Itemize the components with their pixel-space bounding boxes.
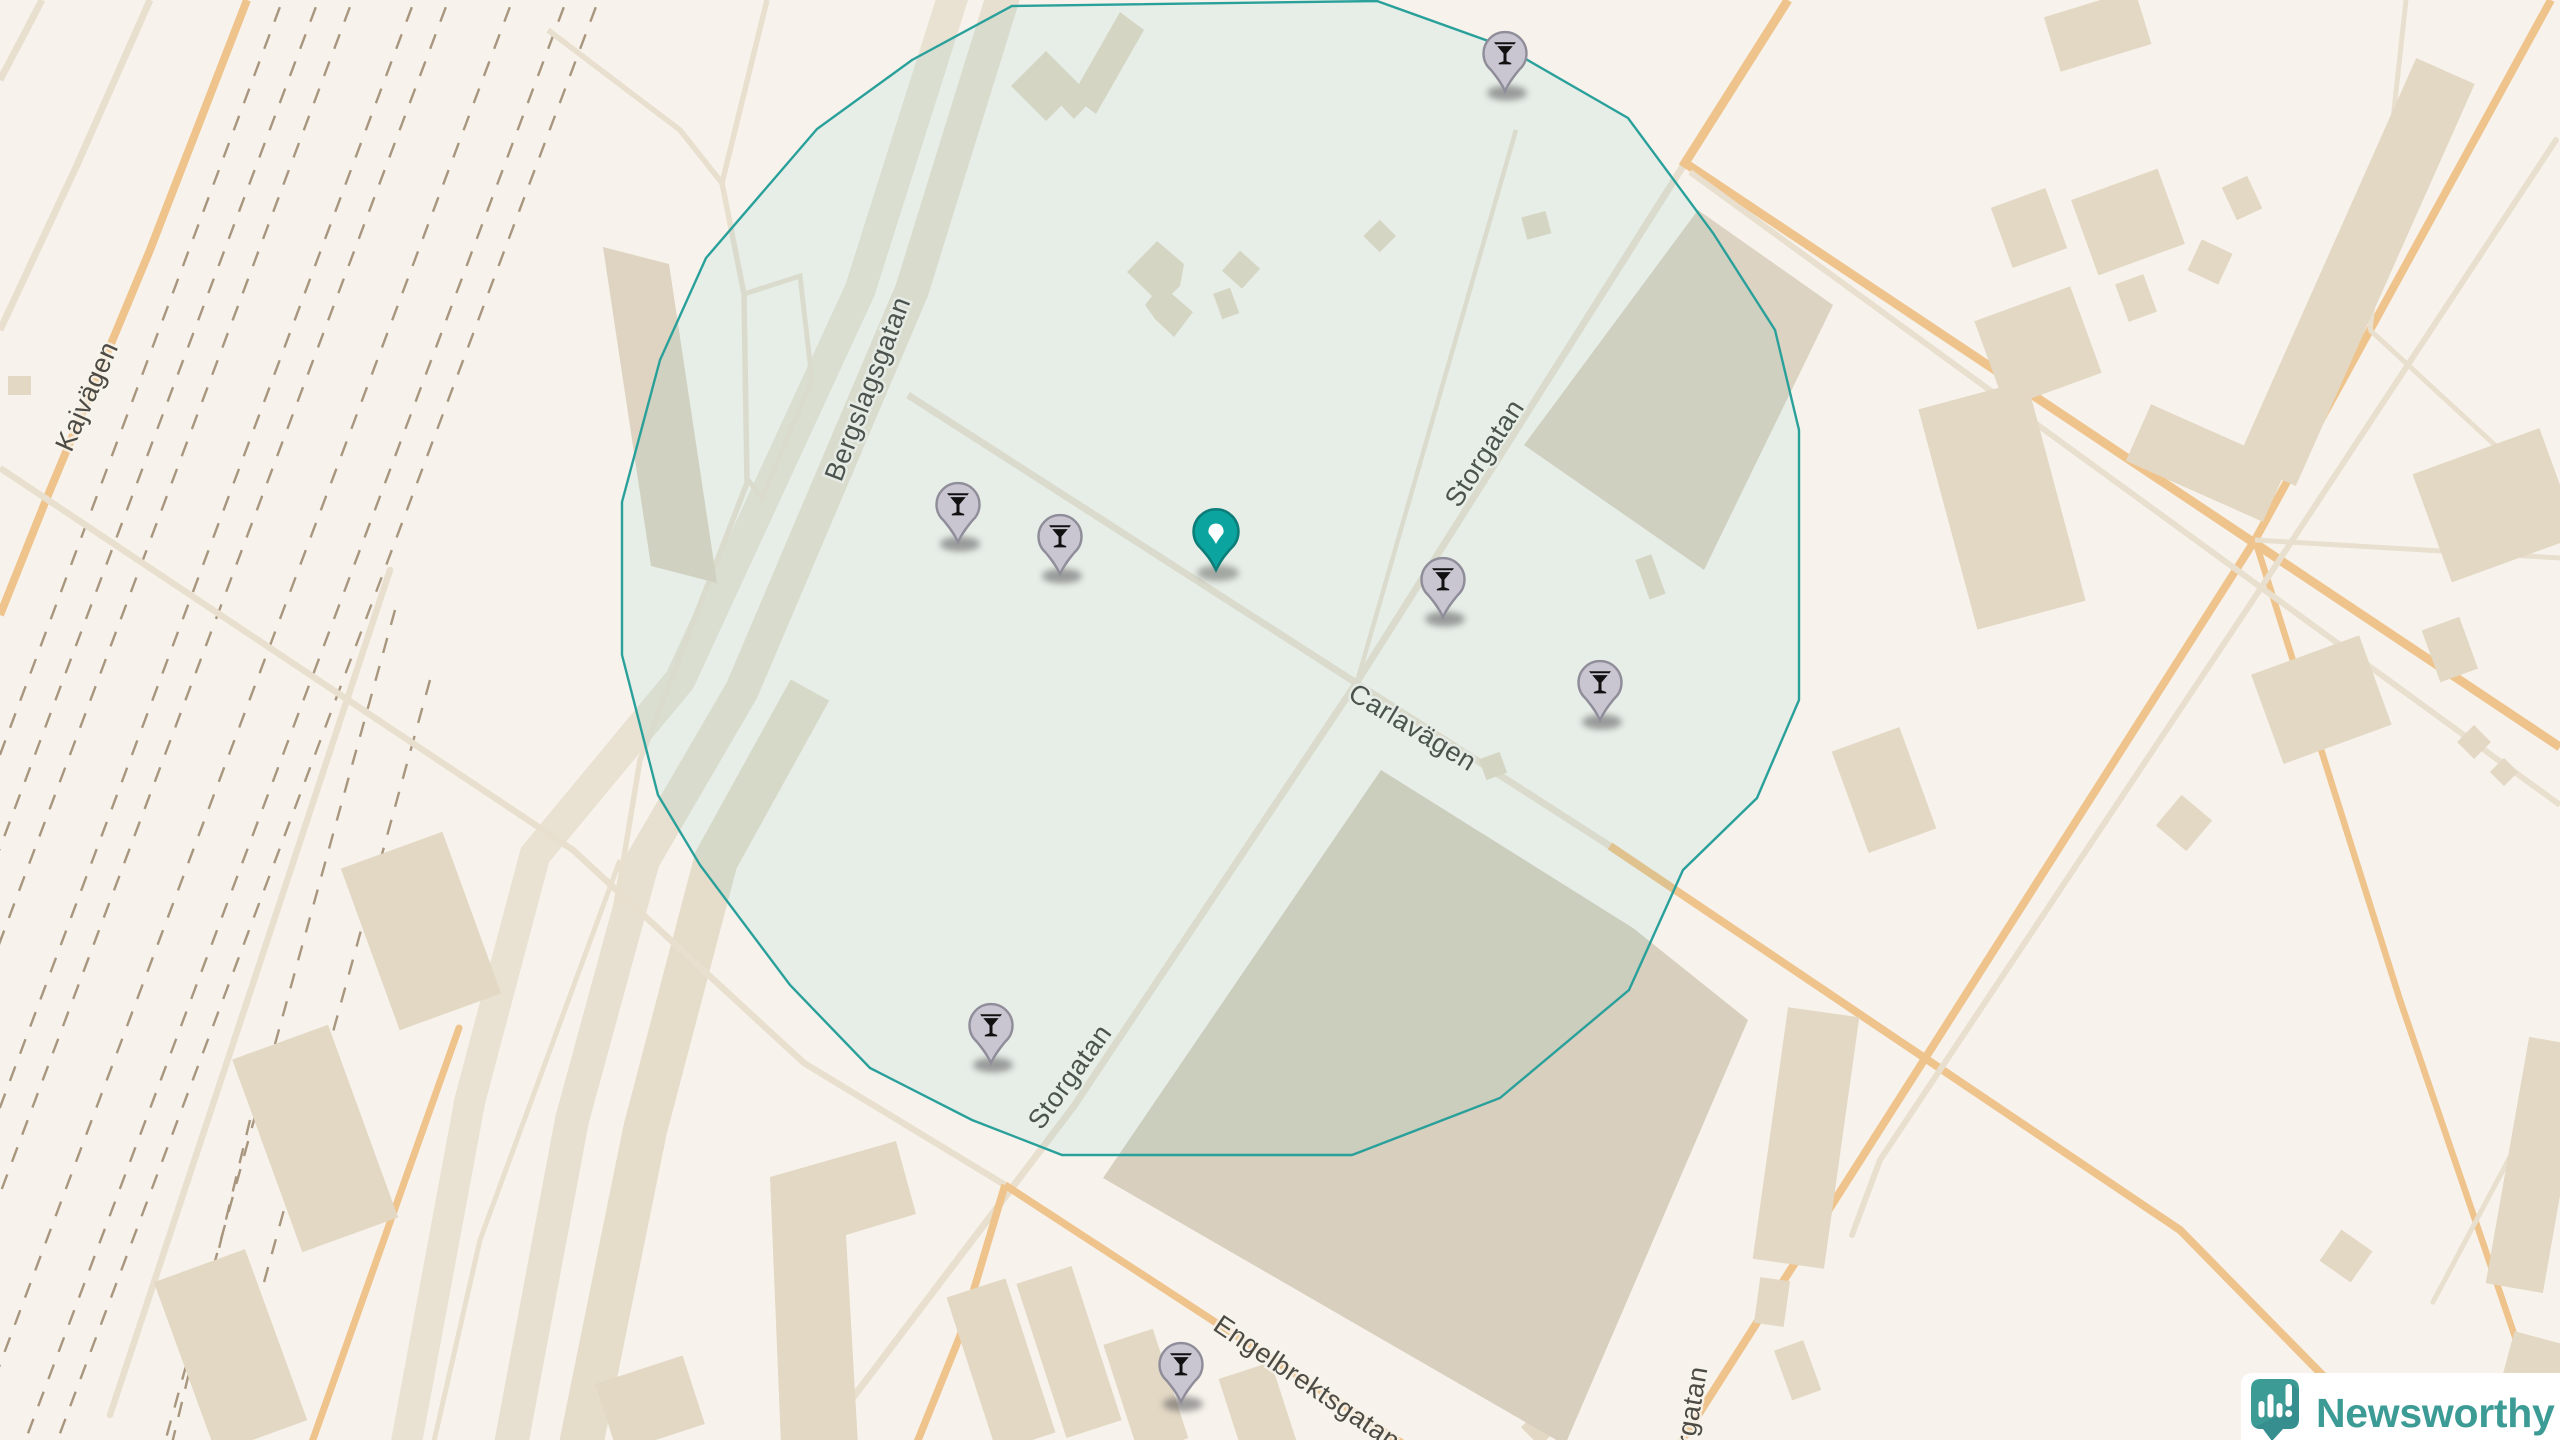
svg-text:Newsworthy: Newsworthy <box>2316 1390 2555 1436</box>
